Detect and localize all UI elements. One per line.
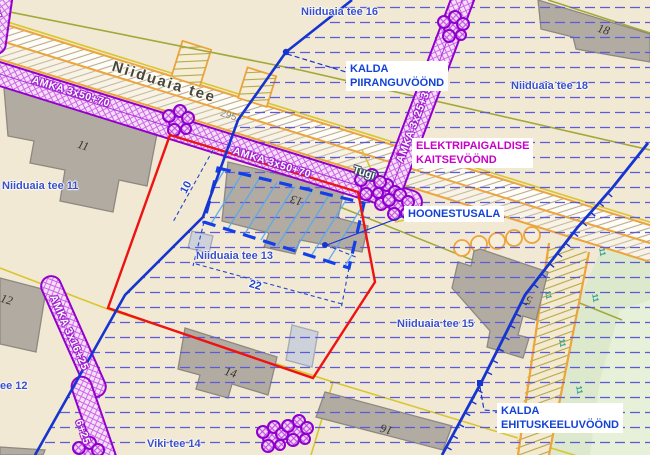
- veg-mark: 11: [543, 290, 553, 300]
- veg-mark: 11: [557, 338, 567, 348]
- callout-elektripaigaldise-kaitsevoond: ELEKTRIPAIGALDISE KAITSEVÖÖND: [412, 138, 533, 168]
- veg-mark: 11: [590, 293, 600, 303]
- callout-line: KALDA: [350, 62, 444, 76]
- callout-line: KALDA: [501, 404, 619, 418]
- veg-mark: 11: [574, 385, 584, 395]
- callout-line: ELEKTRIPAIGALDISE: [416, 139, 529, 153]
- callout-kalda-ehituskeeluvoond: KALDA EHITUSKEELUVÖÖND: [497, 403, 623, 433]
- veg-mark: 11: [597, 247, 607, 257]
- callout-hoonestusala: HOONESTUSALA: [404, 206, 504, 222]
- callout-line: KAITSEVÖÖND: [416, 153, 529, 167]
- plan-drawing: [0, 0, 650, 455]
- callout-line: PIIRANGUVÖÖND: [350, 76, 444, 90]
- callout-kalda-piiranguvoond: KALDA PIIRANGUVÖÖND: [346, 61, 448, 91]
- callout-line: EHITUSKEELUVÖÖND: [501, 418, 619, 432]
- callout-line: HOONESTUSALA: [408, 207, 500, 221]
- building-12: [0, 278, 46, 352]
- map-canvas[interactable]: Niiduaia tee 295 Niiduaia tee 16 Niiduai…: [0, 0, 650, 455]
